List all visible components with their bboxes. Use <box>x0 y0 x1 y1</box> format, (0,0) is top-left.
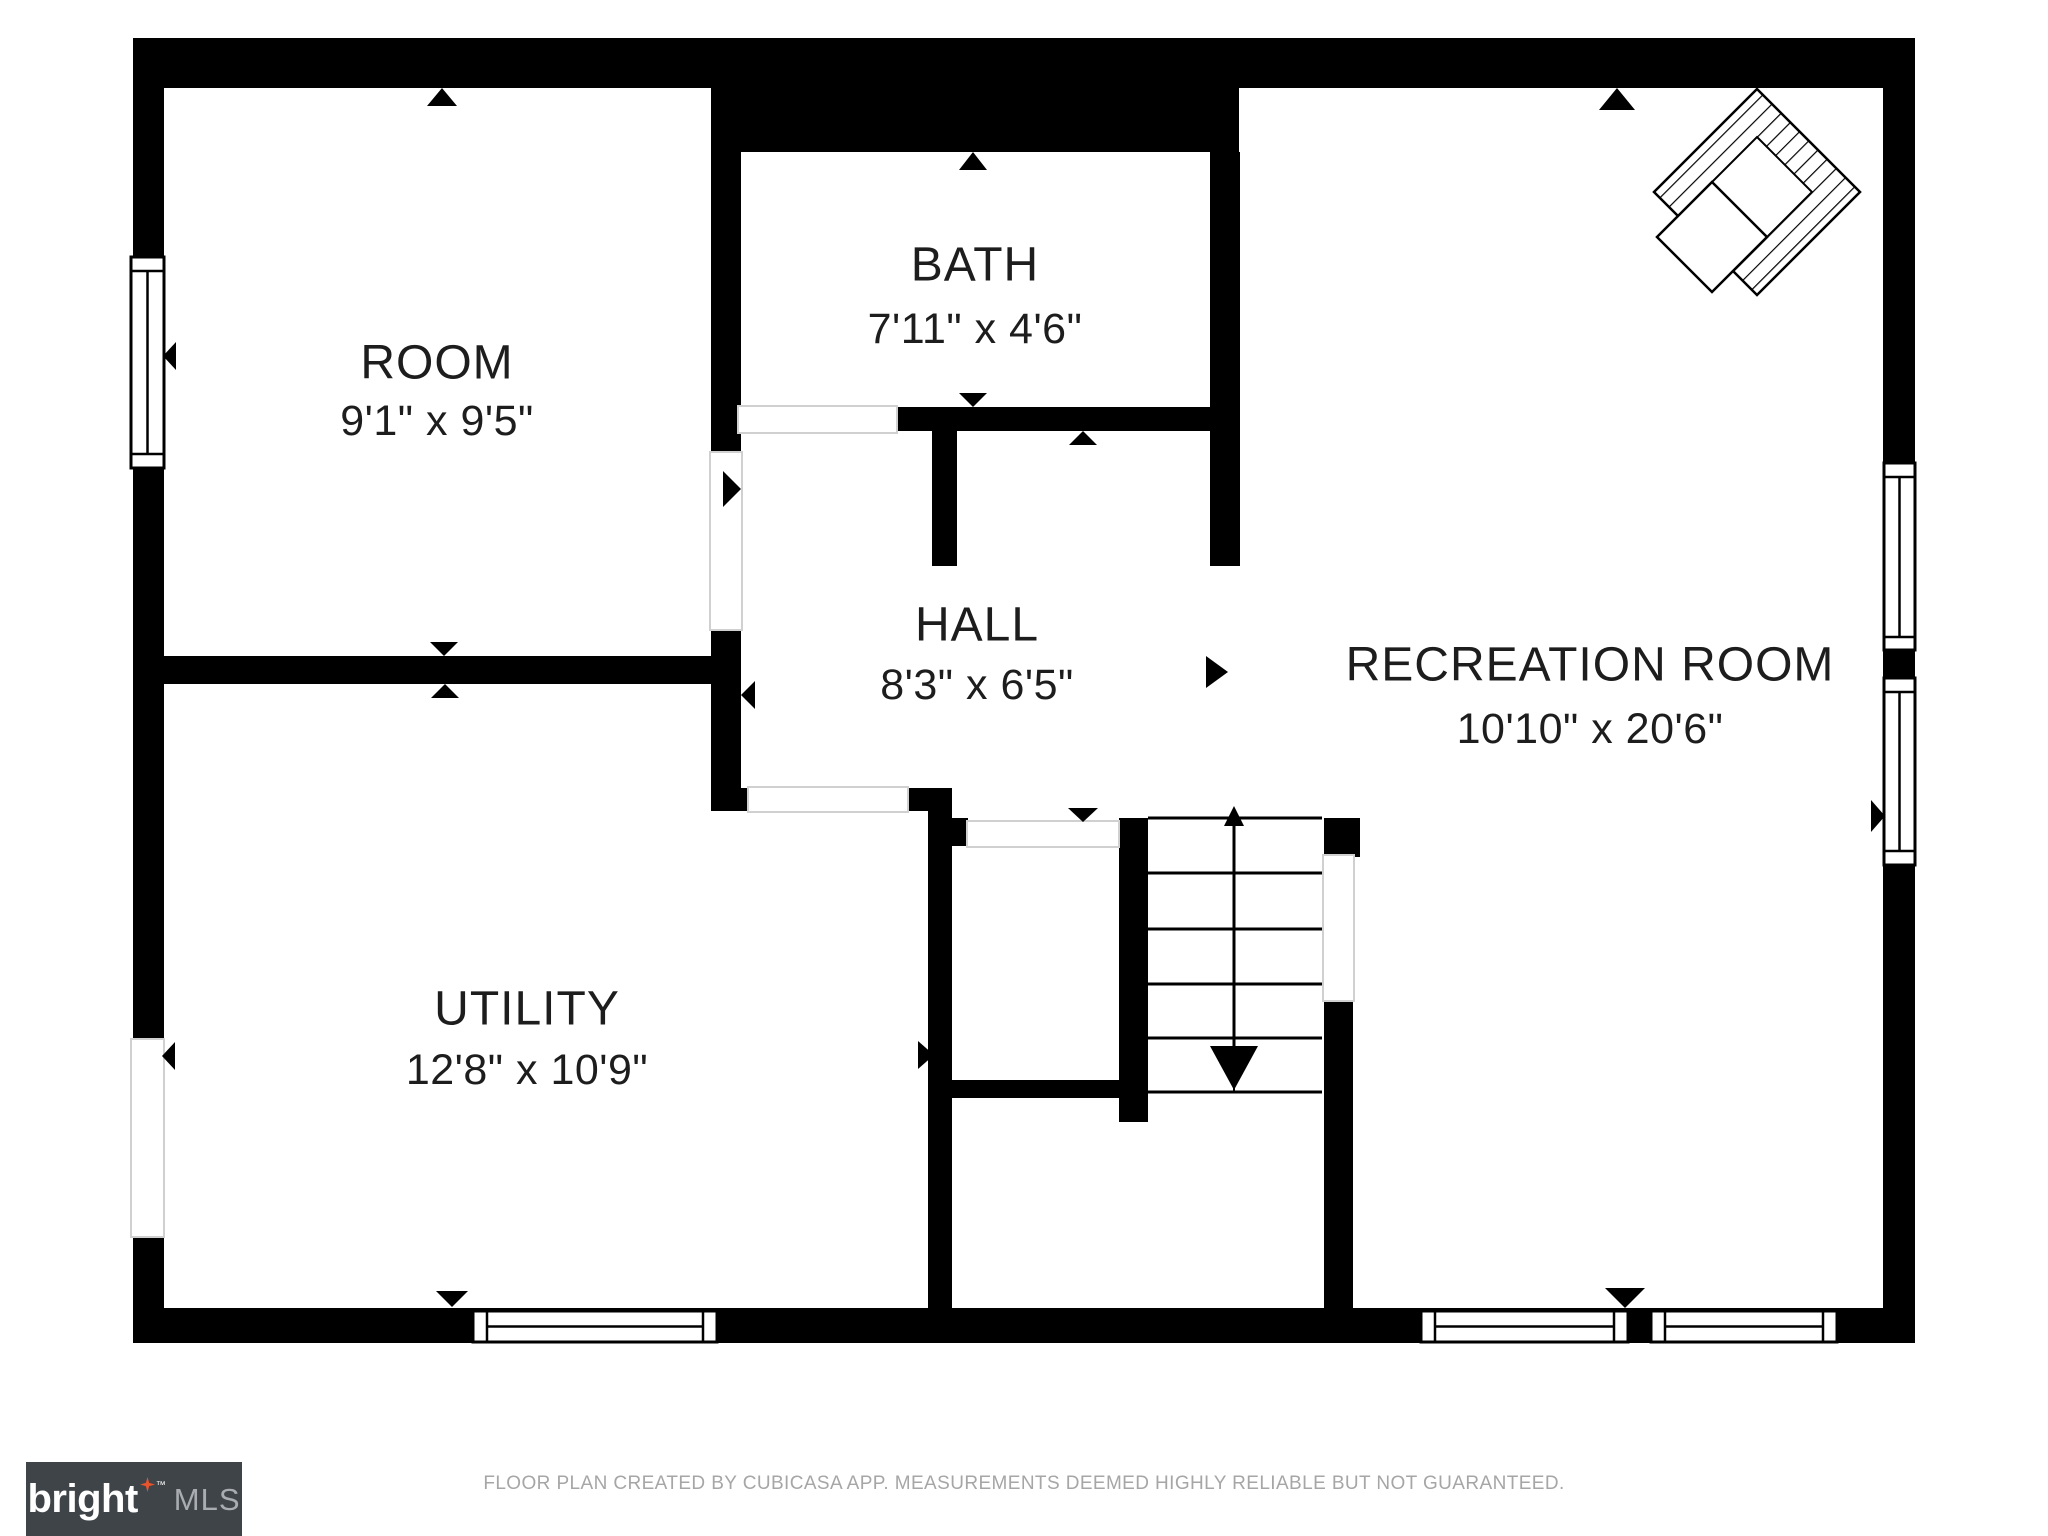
room-name: HALL <box>915 599 1039 652</box>
footer-disclaimer: FLOOR PLAN CREATED BY CUBICASA APP. MEAS… <box>0 1473 2048 1495</box>
room-dimensions: 9'1" x 9'5" <box>340 397 534 445</box>
marker-rec-bottom-icon <box>1605 1288 1645 1308</box>
wall <box>164 656 741 684</box>
door-openings <box>131 406 1354 1237</box>
window <box>1884 463 1915 650</box>
logo-mls-text: MLS <box>174 1484 241 1515</box>
marker-hall-rec-icon <box>1206 656 1228 688</box>
brightmls-logo: bright ™ MLS <box>26 1462 242 1536</box>
stairs-down-arrow-icon <box>1210 806 1258 1090</box>
wall <box>1119 818 1148 1122</box>
marker-room-top-icon <box>427 88 457 106</box>
wall <box>711 38 1239 152</box>
wall <box>133 1308 1915 1343</box>
marker-rec-top-icon <box>1599 88 1635 110</box>
room-label-utility: UTILITY 12'8" x 10'9" <box>406 983 648 1095</box>
marker-utility-top-icon <box>431 684 459 698</box>
wall <box>908 788 952 811</box>
wall <box>1324 818 1360 857</box>
door-opening <box>738 406 897 433</box>
wall <box>1210 152 1240 566</box>
room-label-room: ROOM 9'1" x 9'5" <box>340 337 534 446</box>
room-name: RECREATION ROOM <box>1346 639 1835 692</box>
room-name: BATH <box>911 239 1039 292</box>
marker-hall-top-icon <box>1069 431 1097 445</box>
star-icon <box>140 1477 155 1492</box>
room-dimensions: 10'10" x 20'6" <box>1457 705 1724 753</box>
marker-stair-door-icon <box>1068 808 1098 822</box>
door-opening <box>1323 855 1354 1001</box>
floor-plan-page: ROOM 9'1" x 9'5" BATH 7'11" x 4'6" HALL … <box>0 0 2048 1536</box>
logo-brand-text: bright <box>27 1479 137 1519</box>
wall <box>932 431 957 566</box>
wall <box>928 811 952 1308</box>
marker-utility-bottom-icon <box>436 1291 468 1307</box>
marker-room-bottom-icon <box>430 642 458 656</box>
staircase <box>1148 806 1322 1092</box>
room-dimensions: 12'8" x 10'9" <box>406 1046 648 1094</box>
door-opening <box>131 1039 164 1237</box>
window <box>473 1311 717 1342</box>
room-dimensions: 8'3" x 6'5" <box>880 661 1074 709</box>
fireplace-icon <box>1654 89 1860 295</box>
room-label-hall: HALL 8'3" x 6'5" <box>880 599 1074 710</box>
wall <box>897 407 1239 431</box>
window <box>1651 1311 1837 1342</box>
floor-plan-drawing: ROOM 9'1" x 9'5" BATH 7'11" x 4'6" HALL … <box>0 0 2048 1536</box>
marker-bath-top-icon <box>959 152 987 170</box>
marker-bath-door-icon <box>959 393 987 407</box>
wall <box>952 1080 1148 1098</box>
window <box>131 257 164 468</box>
room-dimensions: 7'11" x 4'6" <box>868 305 1083 353</box>
wall <box>952 818 968 846</box>
door-opening <box>748 787 908 812</box>
room-name: ROOM <box>360 337 513 390</box>
wall <box>711 88 741 452</box>
room-name: UTILITY <box>434 983 620 1036</box>
door-opening <box>967 821 1119 847</box>
room-label-bath: BATH 7'11" x 4'6" <box>868 239 1083 354</box>
marker-hall-left-icon <box>741 681 755 709</box>
wall <box>1324 1000 1353 1308</box>
window <box>1421 1311 1628 1342</box>
logo-trademark: ™ <box>156 1480 166 1491</box>
window <box>1884 664 1915 865</box>
room-label-recreation: RECREATION ROOM 10'10" x 20'6" <box>1346 639 1835 754</box>
